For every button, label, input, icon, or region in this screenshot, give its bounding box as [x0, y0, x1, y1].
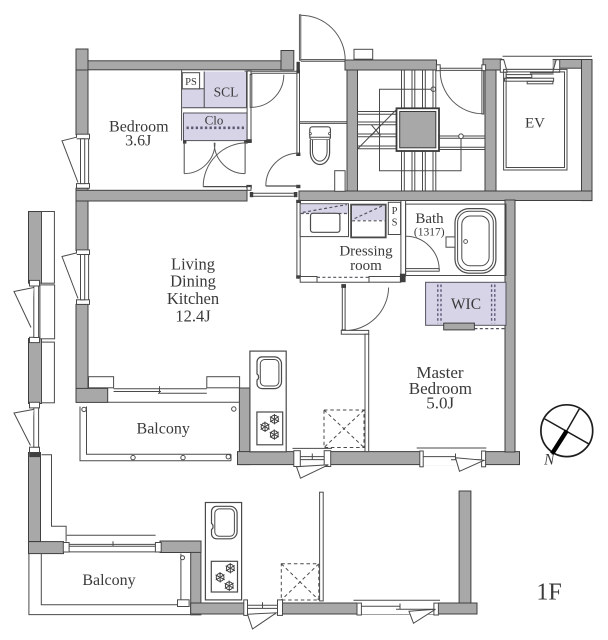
svg-text:S: S	[392, 218, 398, 229]
svg-text:12.4J: 12.4J	[175, 307, 211, 326]
svg-text:1F: 1F	[536, 579, 561, 605]
svg-text:5.0J: 5.0J	[426, 394, 454, 413]
svg-text:Balcony: Balcony	[137, 421, 190, 438]
svg-text:Kitchen: Kitchen	[167, 289, 219, 308]
svg-text:Dining: Dining	[170, 272, 216, 291]
svg-text:3.6J: 3.6J	[125, 132, 151, 149]
svg-text:WIC: WIC	[451, 296, 481, 313]
svg-text:PS: PS	[185, 77, 197, 88]
svg-text:N: N	[543, 451, 556, 468]
svg-text:(1317): (1317)	[414, 227, 445, 239]
svg-text:room: room	[350, 258, 382, 274]
svg-text:SCL: SCL	[214, 85, 239, 100]
svg-text:Bath: Bath	[415, 211, 444, 227]
svg-text:EV: EV	[525, 116, 545, 132]
svg-text:Clo: Clo	[205, 113, 224, 128]
svg-text:Balcony: Balcony	[82, 572, 135, 589]
svg-text:P: P	[392, 206, 398, 217]
